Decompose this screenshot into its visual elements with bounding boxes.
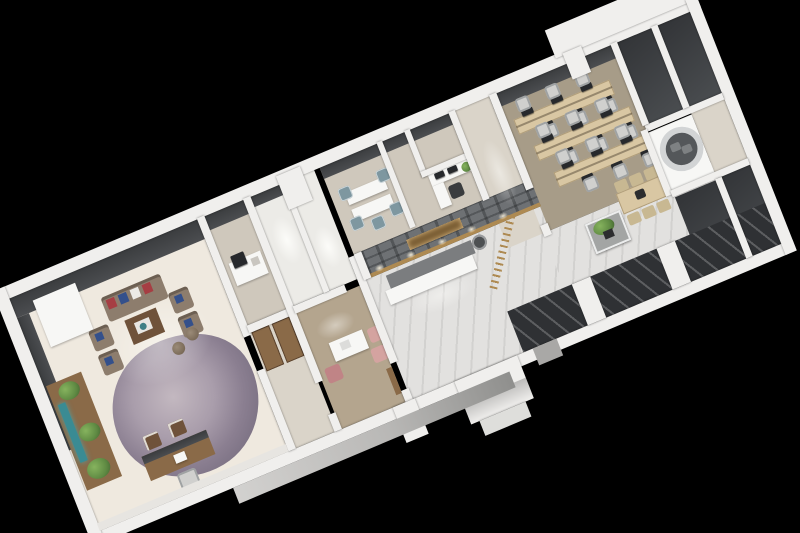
floorplan-isometric-scene — [8, 11, 781, 531]
black-backdrop — [0, 0, 800, 533]
